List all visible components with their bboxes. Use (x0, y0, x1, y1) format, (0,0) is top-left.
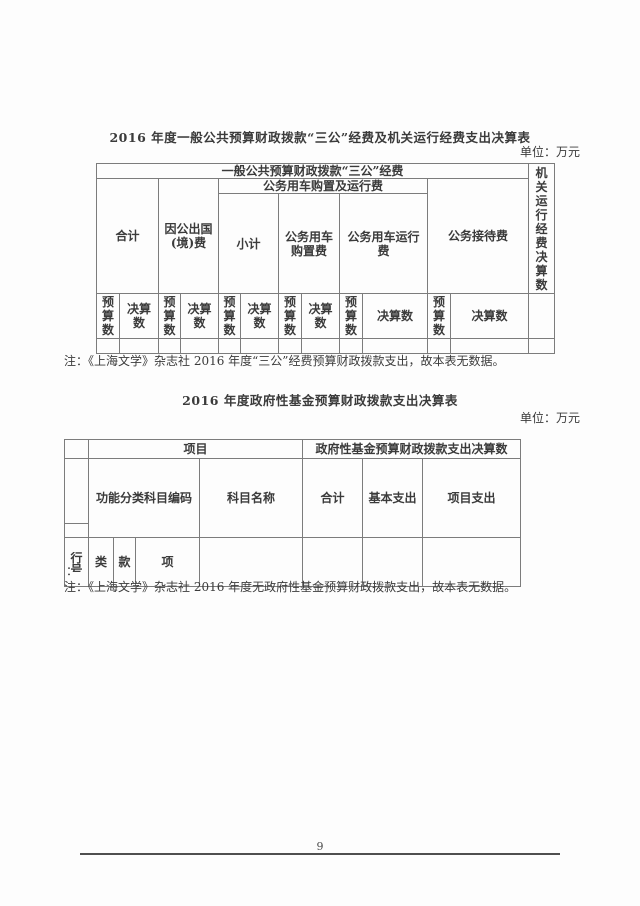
table2-unit-label: 单位：万元 (520, 409, 580, 426)
t2-header-project: 项目 (89, 440, 303, 459)
t1-col-budget: 预 算 数 (279, 294, 302, 339)
t2-corner-cell (65, 440, 89, 459)
t1-data-cell (302, 339, 340, 354)
t1-data-cell (340, 339, 363, 354)
t1-col-final: 决算 数 (241, 294, 279, 339)
t2-left-spacer-cell (65, 459, 89, 524)
t1-data-cell (241, 339, 279, 354)
t2-header-basic-expense: 基本支出 (363, 459, 423, 538)
table1-note: 注：《上海文学》杂志社 2016 年度“三公”经费预算财政拨款支出，故本表无数据… (64, 354, 504, 369)
t1-col-budget: 预 算 数 (159, 294, 181, 339)
t1-data-cell (97, 339, 120, 354)
gov-fund-expenditure-table: 项目 政府性基金预算财政拨款支出决算数 功能分类科目编码 科目名称 合计 基本支… (64, 439, 521, 587)
t1-header-subtotal: 小计 (219, 194, 279, 294)
t1-data-cell (120, 339, 159, 354)
t1-col-final: 决算 数 (302, 294, 340, 339)
footer-rule (80, 853, 560, 855)
page-number: 9 (80, 840, 560, 853)
t1-header-vehicle-operation: 公务用车运行 费 (340, 194, 428, 294)
t1-data-cell (529, 339, 555, 354)
t1-data-cell (279, 339, 302, 354)
t1-data-cell (181, 339, 219, 354)
t1-empty-cell (529, 294, 555, 339)
t1-data-cell (451, 339, 529, 354)
t2-header-total: 合计 (303, 459, 363, 538)
t1-header-abroad: 因公出国 (境)费 (159, 179, 219, 294)
t1-data-cell (428, 339, 451, 354)
t1-col-budget: 预 算 数 (428, 294, 451, 339)
three-public-funds-table: 一般公共预算财政拨款“三公”经费 机 关 运 行 经 费 决 算 数 合计 因公… (96, 163, 555, 354)
t1-header-reception: 公务接待费 (428, 179, 529, 294)
t1-header-agency-operating: 机 关 运 行 经 费 决 算 数 (529, 164, 555, 294)
t1-col-budget: 预 算 数 (97, 294, 120, 339)
t2-header-fund-final: 政府性基金预算财政拨款支出决算数 (303, 440, 521, 459)
table2-note: 注：《上海文学》杂志社 2016 年度无政府性基金预算财政拨款支出，故本表无数据… (64, 580, 516, 595)
stray-colon-text: ： (66, 562, 78, 579)
t1-data-cell (219, 339, 241, 354)
t2-header-project-expense: 项目支出 (423, 459, 521, 538)
t1-data-cell (363, 339, 428, 354)
table2-title: 2016 年度政府性基金预算财政拨款支出决算表 (0, 390, 640, 409)
t1-header-total: 合计 (97, 179, 159, 294)
t1-col-final: 决算数 (451, 294, 529, 339)
t1-col-final: 决算 数 (120, 294, 159, 339)
t1-col-final: 决算数 (363, 294, 428, 339)
t2-header-subject-name: 科目名称 (200, 459, 303, 538)
t1-data-cell (159, 339, 181, 354)
t1-header-vehicle-group: 公务用车购置及运行费 (219, 179, 428, 194)
t1-col-budget: 预 算 数 (340, 294, 363, 339)
t1-col-final: 决算 数 (181, 294, 219, 339)
t2-header-function-code: 功能分类科目编码 (89, 459, 200, 538)
t1-header-general-budget: 一般公共预算财政拨款“三公”经费 (97, 164, 529, 179)
table1-unit-label: 单位：万元 (520, 143, 580, 160)
t2-left-spacer-cell-small (65, 524, 89, 538)
t1-col-budget: 预 算 数 (219, 294, 241, 339)
document-page: 2016 年度一般公共预算财政拨款“三公”经费及机关运行经费支出决算表 单位：万… (0, 0, 640, 906)
t1-header-vehicle-purchase: 公务用车 购置费 (279, 194, 340, 294)
